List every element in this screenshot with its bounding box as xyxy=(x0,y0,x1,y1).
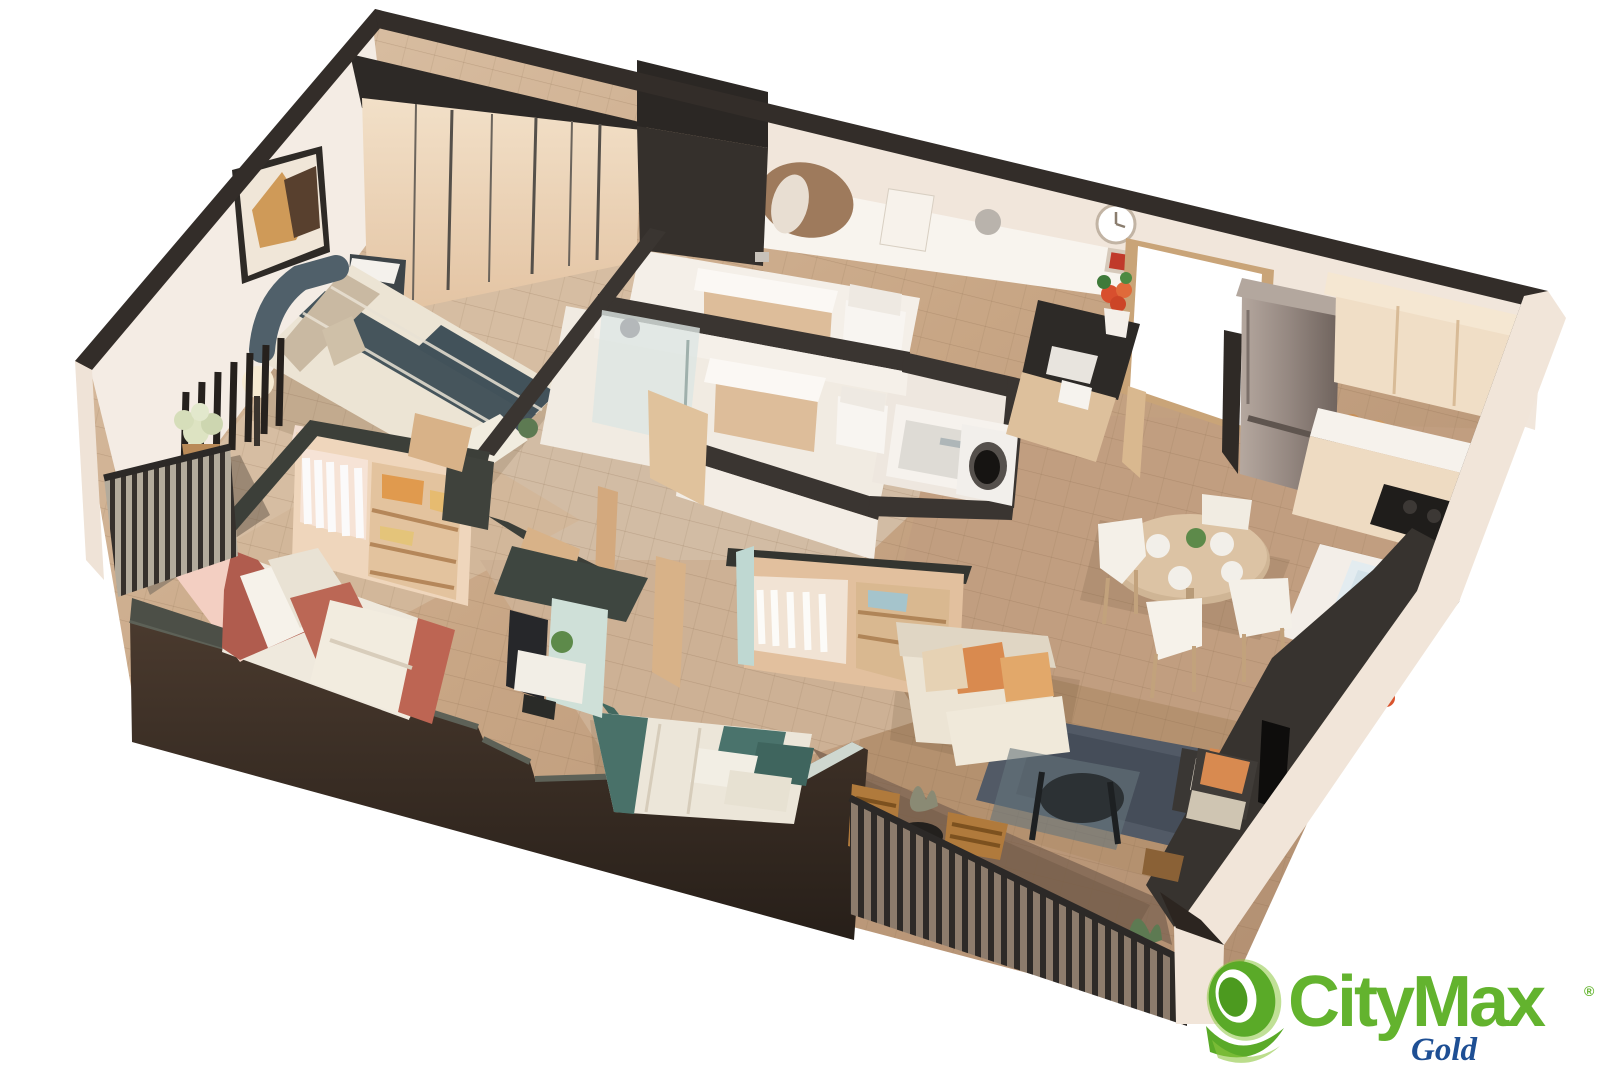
svg-text:®: ® xyxy=(1584,983,1595,999)
svg-text:CityMax: CityMax xyxy=(1288,962,1546,1042)
svg-text:Gold: Gold xyxy=(1411,1032,1478,1068)
